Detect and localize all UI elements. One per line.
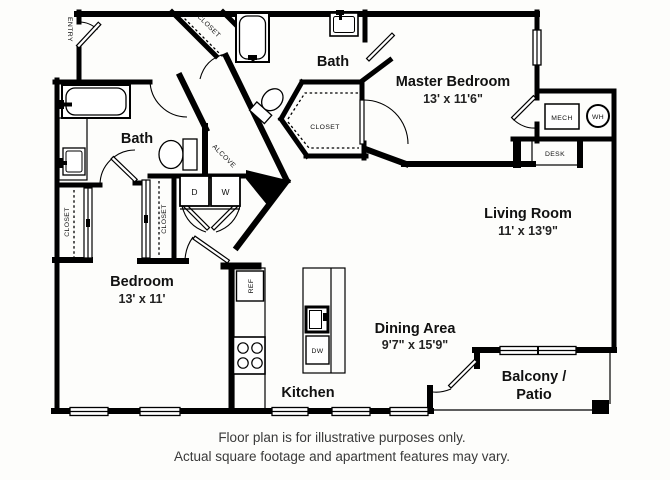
sink-faucet-icon <box>336 10 344 15</box>
window-kitchen <box>272 408 308 416</box>
label-desk: DESK <box>545 151 565 158</box>
master-closet-rod <box>288 93 359 148</box>
upper-bath-door <box>200 54 225 79</box>
label-bedroom-closet-left: CLOSET <box>64 207 71 237</box>
kitchen-island <box>303 268 345 373</box>
label-master-closet: CLOSET <box>310 124 340 131</box>
label-entry-closet: CLOSET <box>196 13 222 39</box>
label-mech: MECH <box>551 115 573 122</box>
label-entry: ENTRY <box>66 17 73 42</box>
toilet-lower <box>159 139 197 170</box>
room-label-master-bedroom: Master Bedroom <box>396 74 510 90</box>
room-label-balcony-line1: Balcony / <box>502 369 566 385</box>
room-label-dining-area: Dining Area <box>375 321 457 337</box>
closet-details <box>74 15 359 258</box>
dims-bedroom: 13' x 11' <box>119 292 166 306</box>
dims-living-room: 11' x 13'9" <box>498 224 558 238</box>
left-closet-sliding-door <box>84 188 92 258</box>
disclaimer-line-2: Actual square footage and apartment feat… <box>174 449 510 464</box>
label-dryer: D <box>191 187 197 197</box>
dims-dining-area: 9'7" x 15'9" <box>382 338 449 352</box>
window-bedroom-2 <box>140 408 180 416</box>
bath-closet-passage-door <box>100 150 137 185</box>
window-dining-2 <box>390 408 428 416</box>
floor-plan-drawing: Master Bedroom 13' x 11'6" Living Room 1… <box>0 0 670 480</box>
bathtub-upper <box>236 13 269 63</box>
label-dishwasher: DW <box>311 348 323 355</box>
bathtub-lower <box>58 85 130 118</box>
disclaimer-line-1: Floor plan is for illustrative purposes … <box>218 430 465 445</box>
entry-door <box>76 22 100 48</box>
stove <box>234 337 266 374</box>
alcove-bifold-doors <box>182 203 240 232</box>
room-label-living-room: Living Room <box>484 206 572 222</box>
floor-plan: Master Bedroom 13' x 11'6" Living Room 1… <box>0 0 670 480</box>
balcony-door <box>433 359 477 392</box>
window-master-bedroom <box>533 30 541 65</box>
dims-master-bedroom: 13' x 11'6" <box>423 92 483 106</box>
master-closet-door <box>360 100 408 144</box>
label-water-heater: WH <box>592 114 604 121</box>
window-bedroom-1 <box>70 408 108 416</box>
window-balcony <box>500 347 576 355</box>
room-label-bath-lower: Bath <box>121 131 153 147</box>
island-sink <box>306 307 329 332</box>
right-closet-sliding-door <box>142 180 150 258</box>
bedroom-door <box>185 236 229 263</box>
vanity-lower <box>57 118 87 180</box>
label-bedroom-closet-right: CLOSET <box>161 204 168 234</box>
tub-faucet-icon <box>58 100 64 109</box>
room-label-bath-upper: Bath <box>317 54 349 70</box>
sink-upper <box>330 10 358 36</box>
room-label-kitchen: Kitchen <box>281 385 334 401</box>
label-washer: W <box>221 187 229 197</box>
disclaimer: Floor plan is for illustrative purposes … <box>174 430 510 464</box>
master-mech-door <box>512 96 537 128</box>
room-label-bedroom: Bedroom <box>110 274 174 290</box>
balcony-post <box>592 400 609 414</box>
room-label-balcony-line2: Patio <box>516 387 552 403</box>
label-alcove: ALCOVE <box>211 143 237 169</box>
window-dining-1 <box>332 408 370 416</box>
label-refrigerator: REF <box>248 279 255 294</box>
